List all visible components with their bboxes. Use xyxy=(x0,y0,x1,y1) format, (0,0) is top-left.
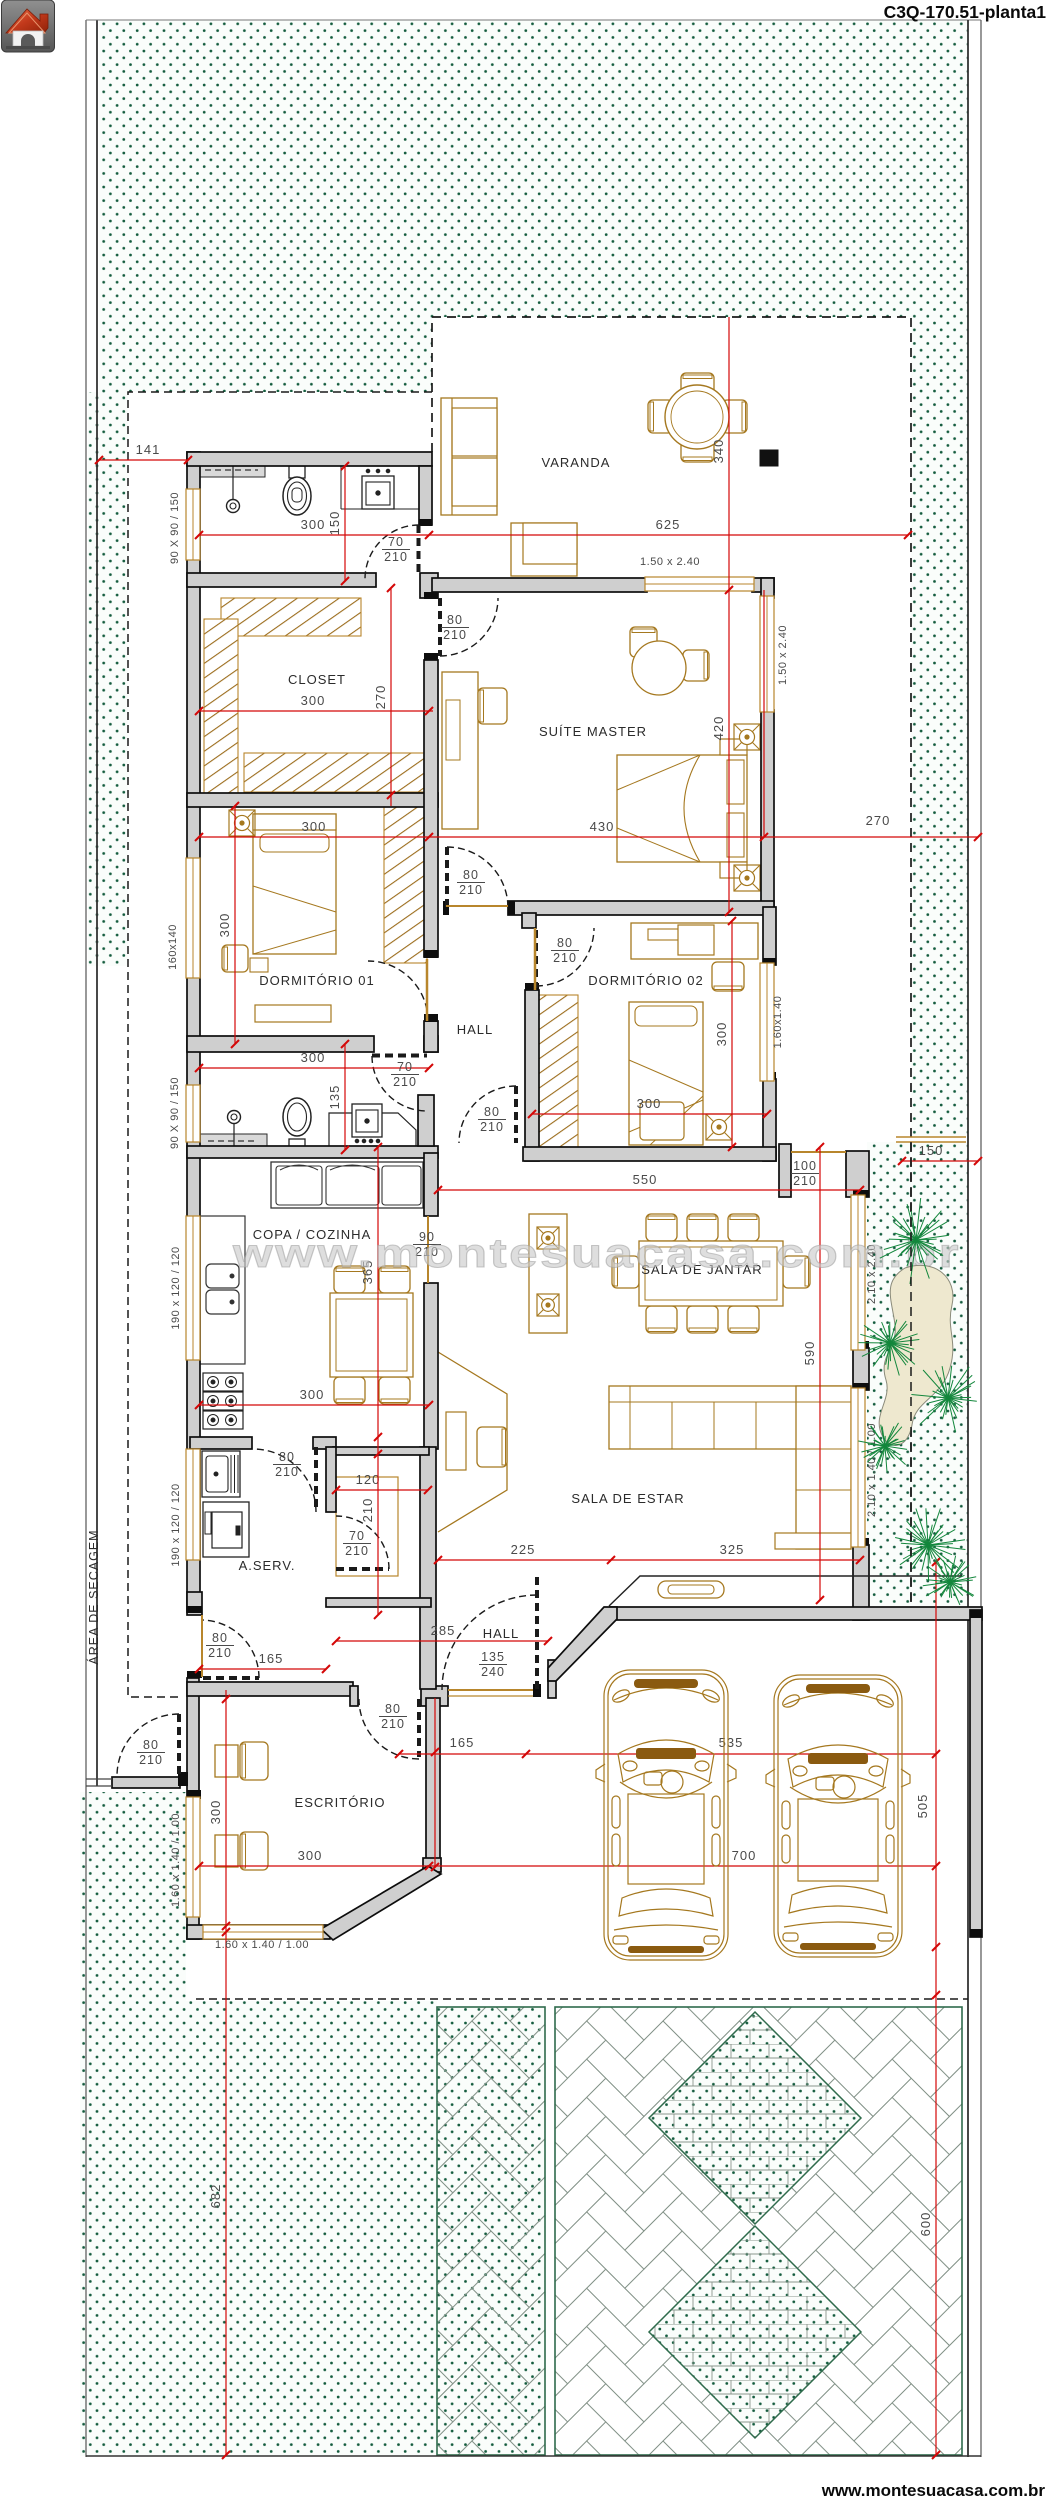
svg-text:80: 80 xyxy=(212,1631,228,1645)
svg-text:ÁREA DE SECAGEM: ÁREA DE SECAGEM xyxy=(86,1529,101,1664)
svg-text:135: 135 xyxy=(481,1650,505,1664)
svg-text:210: 210 xyxy=(345,1544,369,1558)
svg-text:300: 300 xyxy=(637,1096,662,1111)
svg-text:1.50 x 2.40: 1.50 x 2.40 xyxy=(777,625,789,685)
svg-text:625: 625 xyxy=(656,517,681,532)
svg-text:2.10 x 1.40 / 1.00: 2.10 x 1.40 / 1.00 xyxy=(866,1423,878,1517)
svg-text:340: 340 xyxy=(711,439,726,464)
svg-text:70: 70 xyxy=(349,1529,365,1543)
svg-text:80: 80 xyxy=(484,1105,500,1119)
svg-text:A.SERV.: A.SERV. xyxy=(239,1558,296,1573)
svg-text:210: 210 xyxy=(139,1753,163,1767)
svg-text:80: 80 xyxy=(143,1738,159,1752)
svg-text:700: 700 xyxy=(732,1848,757,1863)
svg-text:325: 325 xyxy=(720,1542,745,1557)
svg-text:80: 80 xyxy=(279,1450,295,1464)
svg-text:682: 682 xyxy=(208,2184,223,2209)
svg-text:240: 240 xyxy=(481,1665,505,1679)
svg-text:HALL: HALL xyxy=(483,1626,520,1641)
svg-text:141: 141 xyxy=(136,442,161,457)
svg-text:DORMITÓRIO 01: DORMITÓRIO 01 xyxy=(259,973,375,988)
svg-text:210: 210 xyxy=(381,1717,405,1731)
svg-text:590: 590 xyxy=(802,1341,817,1366)
svg-text:CLOSET: CLOSET xyxy=(288,672,346,687)
svg-text:1.60 x 1.40 / 1.00: 1.60 x 1.40 / 1.00 xyxy=(170,1813,182,1907)
svg-text:VARANDA: VARANDA xyxy=(542,455,611,470)
svg-text:300: 300 xyxy=(300,1387,325,1402)
svg-text:270: 270 xyxy=(866,813,891,828)
svg-text:SALA DE ESTAR: SALA DE ESTAR xyxy=(571,1491,684,1506)
svg-text:210: 210 xyxy=(480,1120,504,1134)
svg-text:430: 430 xyxy=(590,819,615,834)
svg-text:550: 550 xyxy=(633,1172,658,1187)
svg-text:210: 210 xyxy=(459,883,483,897)
svg-text:80: 80 xyxy=(557,936,573,950)
svg-text:300: 300 xyxy=(208,1800,223,1825)
svg-text:210: 210 xyxy=(553,951,577,965)
svg-text:270: 270 xyxy=(373,685,388,710)
svg-text:135: 135 xyxy=(327,1085,342,1110)
svg-text:210: 210 xyxy=(793,1174,817,1188)
svg-text:160x140: 160x140 xyxy=(167,924,179,970)
svg-text:90 X 90 / 150: 90 X 90 / 150 xyxy=(169,492,181,564)
svg-text:70: 70 xyxy=(397,1060,413,1074)
svg-text:150: 150 xyxy=(919,1143,944,1158)
svg-text:HALL: HALL xyxy=(457,1022,494,1037)
svg-text:80: 80 xyxy=(447,613,463,627)
svg-text:285: 285 xyxy=(431,1623,456,1638)
svg-text:150: 150 xyxy=(327,511,342,536)
svg-text:DORMITÓRIO 02: DORMITÓRIO 02 xyxy=(588,973,704,988)
svg-text:1.60 x 1.40 / 1.00: 1.60 x 1.40 / 1.00 xyxy=(215,1939,309,1951)
svg-text:190 x 120 / 120: 190 x 120 / 120 xyxy=(170,1246,182,1329)
svg-text:210: 210 xyxy=(384,550,408,564)
svg-text:300: 300 xyxy=(298,1848,323,1863)
svg-text:420: 420 xyxy=(711,716,726,741)
svg-text:210: 210 xyxy=(208,1646,232,1660)
svg-text:SUÍTE MASTER: SUÍTE MASTER xyxy=(539,724,647,739)
svg-text:C3Q-170.51-planta1: C3Q-170.51-planta1 xyxy=(884,2,1047,22)
svg-text:210: 210 xyxy=(275,1465,299,1479)
svg-text:225: 225 xyxy=(511,1542,536,1557)
svg-text:300: 300 xyxy=(714,1022,729,1047)
svg-text:ESCRITÓRIO: ESCRITÓRIO xyxy=(295,1795,386,1810)
svg-text:90 X 90 / 150: 90 X 90 / 150 xyxy=(169,1077,181,1149)
svg-text:80: 80 xyxy=(385,1702,401,1716)
svg-text:165: 165 xyxy=(450,1735,475,1750)
svg-text:600: 600 xyxy=(918,2212,933,2237)
svg-text:300: 300 xyxy=(302,819,327,834)
svg-text:165: 165 xyxy=(259,1651,284,1666)
svg-text:300: 300 xyxy=(301,1050,326,1065)
svg-text:300: 300 xyxy=(301,693,326,708)
svg-text:120: 120 xyxy=(356,1472,381,1487)
svg-text:535: 535 xyxy=(719,1735,744,1750)
svg-text:80: 80 xyxy=(463,868,479,882)
svg-text:70: 70 xyxy=(388,535,404,549)
svg-text:300: 300 xyxy=(217,913,232,938)
svg-text:190 x 120 / 120: 190 x 120 / 120 xyxy=(170,1483,182,1566)
svg-text:505: 505 xyxy=(915,1794,930,1819)
svg-text:100: 100 xyxy=(793,1159,817,1173)
svg-text:210: 210 xyxy=(393,1075,417,1089)
svg-text:www.montesuacasa.com.br: www.montesuacasa.com.br xyxy=(821,2481,1046,2500)
svg-text:210: 210 xyxy=(360,1498,375,1523)
svg-text:210: 210 xyxy=(443,628,467,642)
svg-text:1.60x1.40: 1.60x1.40 xyxy=(772,996,784,1049)
svg-text:300: 300 xyxy=(301,517,326,532)
svg-text:1.50 x 2.40: 1.50 x 2.40 xyxy=(640,556,700,568)
svg-text:www.montesuacasa.com.br: www.montesuacasa.com.br xyxy=(232,1230,961,1276)
